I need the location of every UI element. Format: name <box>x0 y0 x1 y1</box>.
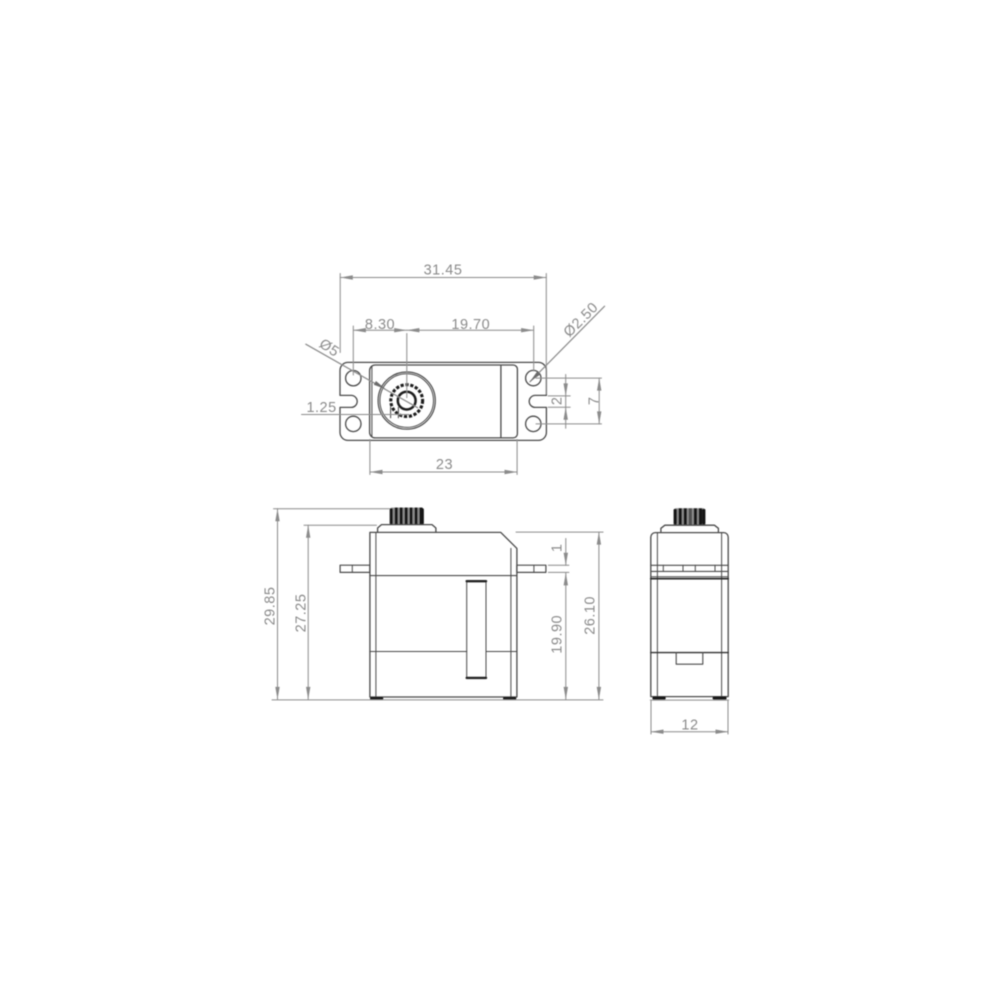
svg-text:23: 23 <box>436 457 453 473</box>
svg-text:1.25: 1.25 <box>306 400 336 416</box>
svg-text:29.85: 29.85 <box>263 587 279 626</box>
svg-text:12: 12 <box>681 718 698 734</box>
svg-text:19.90: 19.90 <box>550 615 566 654</box>
svg-text:27.25: 27.25 <box>293 594 309 633</box>
svg-text:8.30: 8.30 <box>365 317 395 333</box>
svg-text:31.45: 31.45 <box>424 262 463 278</box>
svg-text:7: 7 <box>586 397 602 406</box>
svg-text:1: 1 <box>549 544 565 553</box>
svg-text:26.10: 26.10 <box>583 596 599 635</box>
svg-text:19.70: 19.70 <box>451 317 490 333</box>
svg-text:2: 2 <box>550 397 566 406</box>
